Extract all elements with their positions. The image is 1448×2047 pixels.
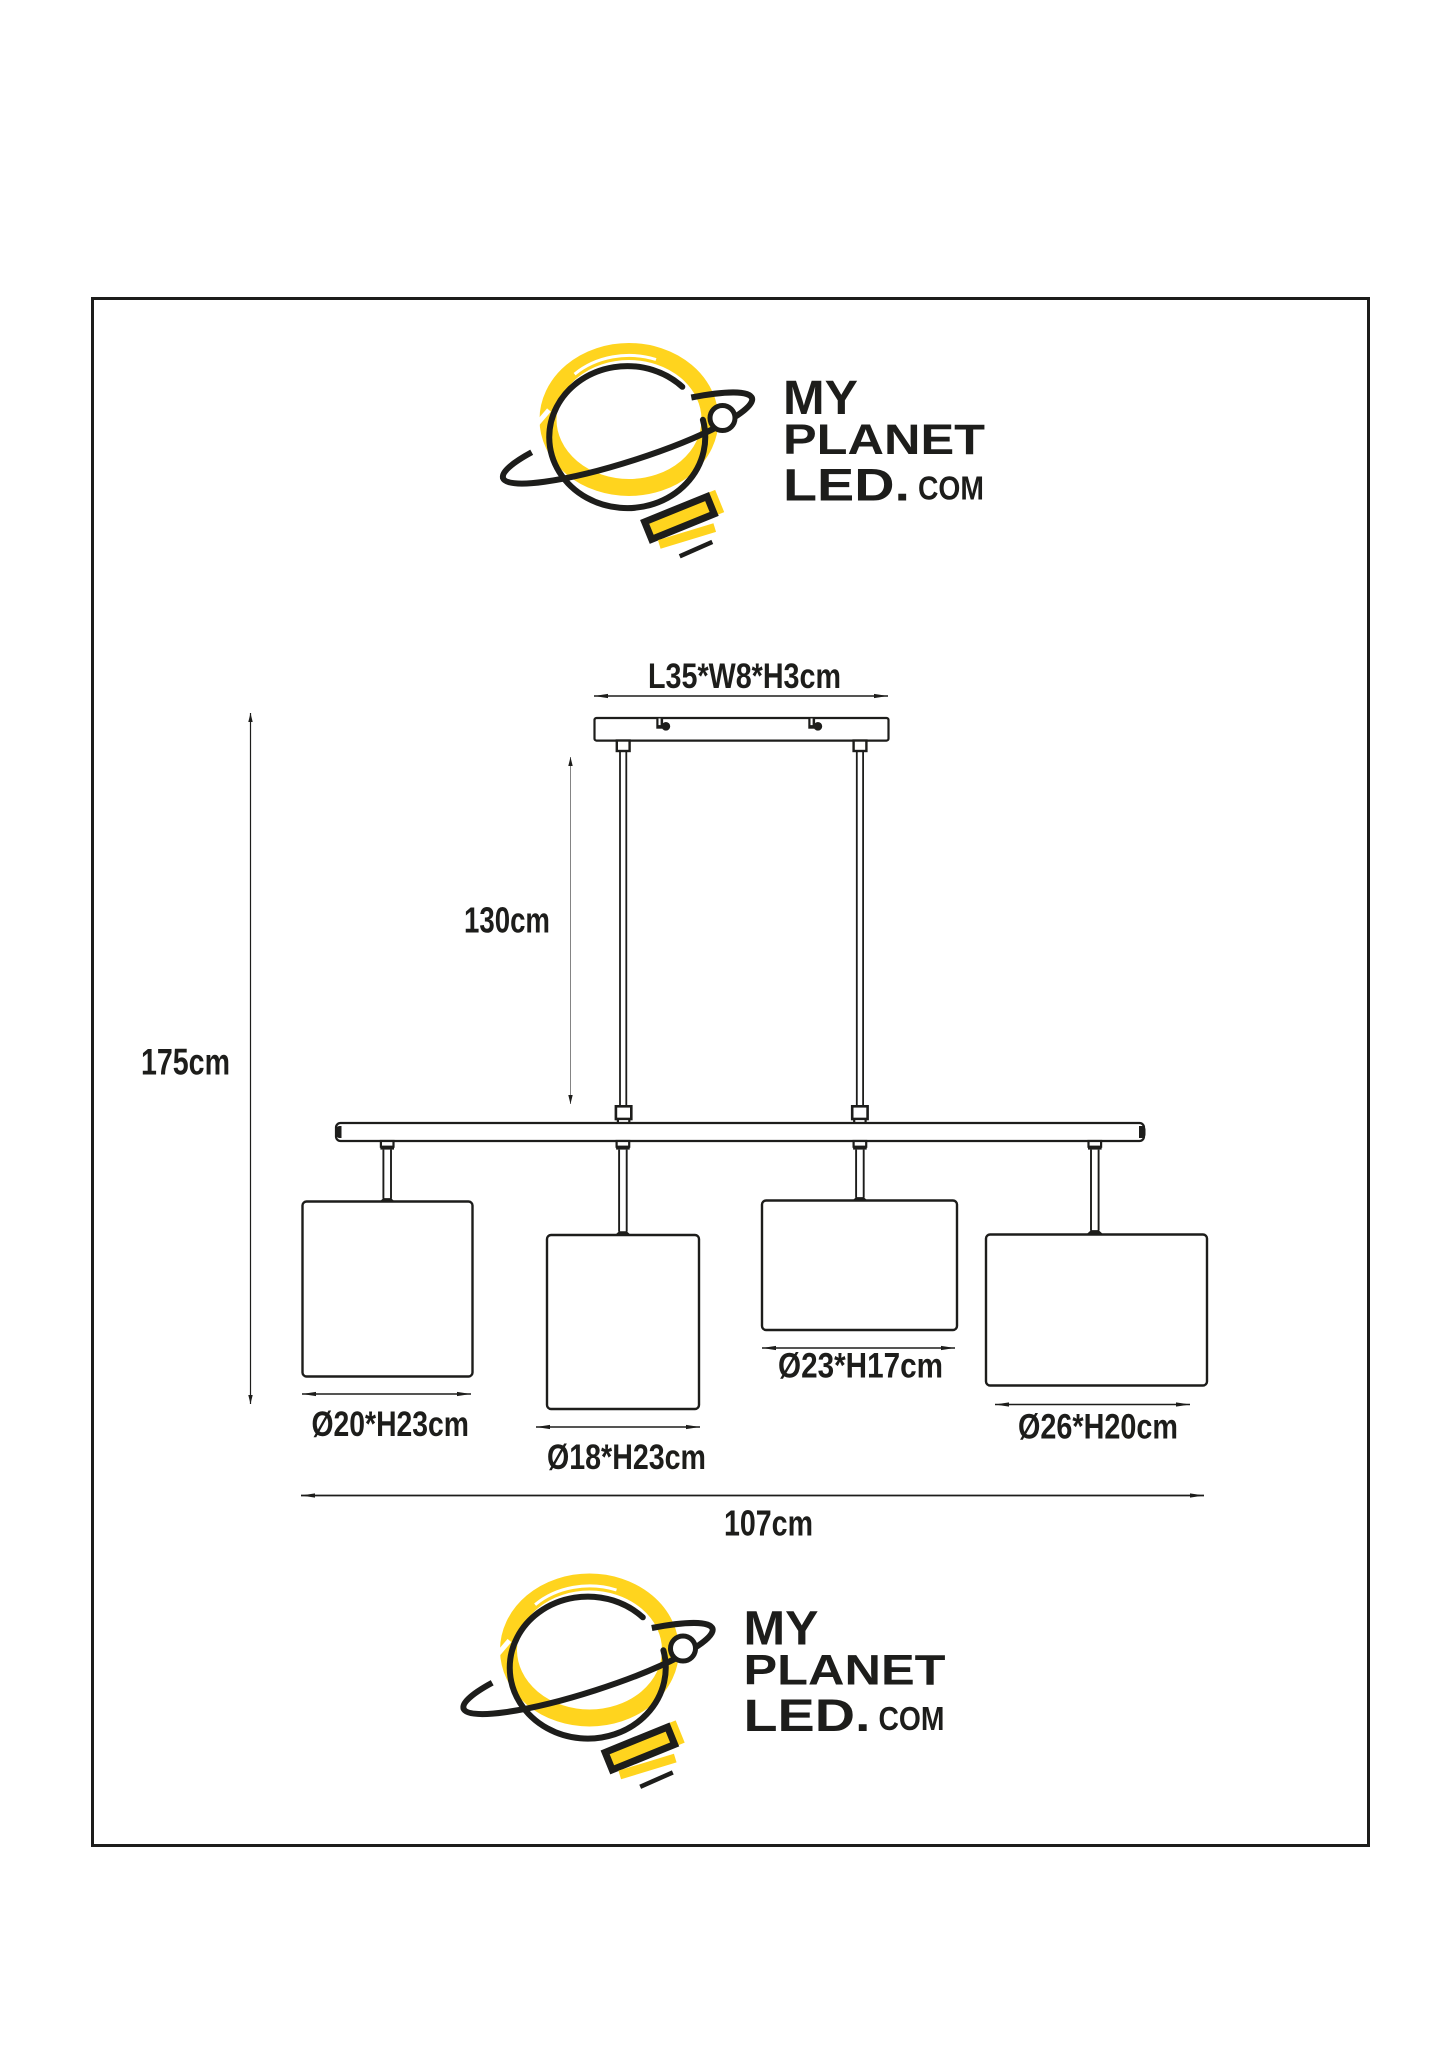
svg-text:107cm: 107cm [724,1503,813,1544]
svg-text:Ø18*H23cm: Ø18*H23cm [547,1437,706,1477]
svg-text:Ø20*H23cm: Ø20*H23cm [312,1404,470,1444]
svg-text:L35*W8*H3cm: L35*W8*H3cm [648,657,841,696]
svg-text:Ø26*H20cm: Ø26*H20cm [1018,1407,1178,1447]
svg-text:130cm: 130cm [464,900,550,941]
svg-text:175cm: 175cm [141,1042,230,1083]
svg-text:Ø23*H17cm: Ø23*H17cm [778,1346,943,1386]
